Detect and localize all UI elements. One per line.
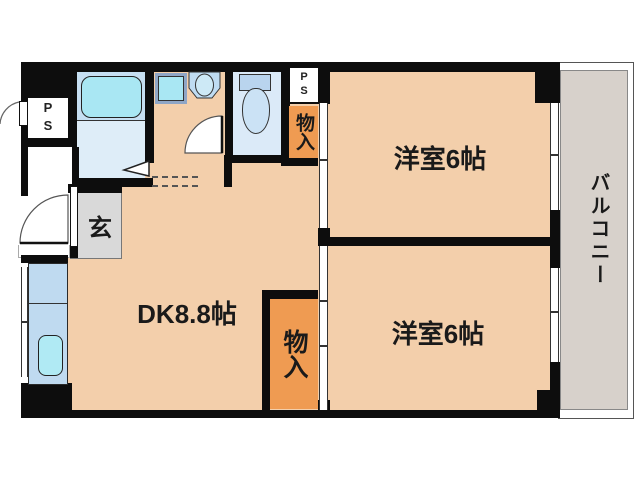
meter-door-swing <box>0 102 19 124</box>
washroom-door-swing <box>185 116 222 153</box>
vanity-basin <box>196 74 214 96</box>
floor-plan: PS PS 物入 物入 <box>0 0 640 480</box>
balcony-label: バルコニー <box>584 172 613 287</box>
entrance-label: 玄 <box>86 208 114 243</box>
bath-door-triangle <box>124 161 149 176</box>
entrance-door-swing <box>20 195 68 243</box>
dk-label: DK8.8帖 <box>117 294 257 331</box>
room2-label: 洋室6帖 <box>358 314 518 351</box>
room1-label: 洋室6帖 <box>360 139 520 176</box>
